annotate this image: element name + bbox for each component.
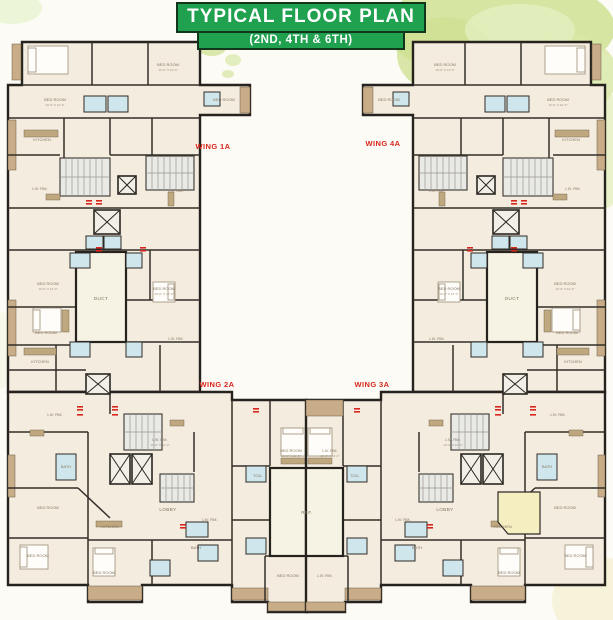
- lift-shaft-a: [118, 176, 136, 194]
- lift-shaft-e: [132, 454, 152, 484]
- room-label: LIV. RM.: [47, 412, 62, 417]
- room-label: LIV. RM.: [395, 517, 410, 522]
- room-label: KITCHEN: [33, 137, 51, 142]
- room-label: BED ROOM: [564, 553, 586, 558]
- room-dim: 10'-0" X 12'-0": [39, 287, 58, 291]
- room-label: LIV. RM.: [445, 437, 460, 442]
- room-label: LIV. RM.: [152, 437, 167, 442]
- room-dim: 10'-0" X 12'-0": [556, 287, 575, 291]
- room-dim: 10'-0" X 12'-0": [155, 292, 174, 296]
- terrace: [306, 400, 343, 416]
- room-dim: 10'-0" X 12'-0": [159, 68, 178, 72]
- room-label: BED ROOM: [280, 448, 302, 453]
- room-dim: 10'-0" X 12'-0": [151, 443, 170, 447]
- refuge-label: REF.: [301, 510, 313, 515]
- room-label: BATH: [542, 464, 552, 469]
- room-label: BED ROOM: [37, 505, 59, 510]
- room-label: LIV. RM.: [202, 517, 217, 522]
- lift-shaft-c: [86, 374, 110, 394]
- right-half-plan: [306, 42, 605, 612]
- plan-title: TYPICAL FLOOR PLAN: [176, 2, 426, 33]
- room-dim: 10'-0" X 12'-0": [440, 292, 459, 296]
- room-label: BED ROOM: [37, 281, 59, 286]
- room-label: BATH: [191, 545, 201, 550]
- room-dim: 10'-0" X 12'-0": [436, 68, 455, 72]
- staircase-block-2: [160, 474, 194, 502]
- room-label: KITCHEN: [562, 137, 580, 142]
- wing-1a-label: WING 1A: [196, 142, 231, 151]
- room-label: BATH: [61, 464, 71, 469]
- room-label: BED ROOM: [554, 281, 576, 286]
- wing-4a-label: WING 4A: [366, 139, 401, 148]
- room-label: TOIL.: [350, 473, 360, 478]
- room-label: LIV. RM.: [429, 336, 444, 341]
- room-label: LIV. RM.: [322, 448, 337, 453]
- plan-subtitle: (2ND, 4TH & 6TH): [197, 31, 405, 50]
- room-label: BED ROOM: [378, 97, 400, 102]
- room-label: BED ROOM: [556, 330, 578, 335]
- room-label: TOIL.: [253, 473, 263, 478]
- room-label: BED ROOM: [35, 330, 57, 335]
- room-dim: 10'-0" X 12'-0": [444, 443, 463, 447]
- floor-plan-page: WING 1A WING 4A WING 2A WING 3A DUCT DUC…: [0, 0, 613, 620]
- lift-shaft-d: [110, 454, 130, 484]
- room-label: KITCHEN: [494, 524, 512, 529]
- room-label: KITCHEN: [31, 359, 49, 364]
- room-label: BED ROOM: [153, 286, 175, 291]
- room-label: LIV. RM.: [32, 186, 47, 191]
- wing-2a-label: WING 2A: [200, 380, 235, 389]
- lobby-label: LOBBY: [159, 507, 176, 512]
- room-dim: 10'-0" X 12'-0": [321, 454, 340, 458]
- room-label: BED ROOM: [44, 97, 66, 102]
- room-label: LIV. RM.: [550, 412, 565, 417]
- room-label: LIV. RM.: [317, 573, 332, 578]
- staircase-tower-1: [60, 158, 110, 196]
- duct-label: DUCT: [505, 296, 519, 301]
- lift-shaft-b: [94, 210, 120, 234]
- room-label: BED ROOM: [438, 286, 460, 291]
- lobby-label: LOBBY: [436, 507, 453, 512]
- staircase-tower-2: [146, 156, 194, 190]
- room-label: BED ROOM: [498, 570, 520, 575]
- room-label: KITCHEN: [564, 359, 582, 364]
- room-dim: 10'-0" X 12'-0": [282, 454, 301, 458]
- room-label: BED ROOM: [93, 570, 115, 575]
- room-label: BED ROOM: [213, 97, 235, 102]
- room-label: BATH: [412, 545, 422, 550]
- room-label: LIV. RM.: [168, 188, 183, 193]
- room-dim: 10'-0" X 12'-0": [46, 103, 65, 107]
- room-label: LIV. RM.: [565, 186, 580, 191]
- room-label: LIV. RM.: [429, 188, 444, 193]
- left-half-plan: [8, 42, 307, 612]
- title-banner: TYPICAL FLOOR PLAN (2ND, 4TH & 6TH): [176, 2, 426, 50]
- floor-plan-canvas: WING 1A WING 4A WING 2A WING 3A DUCT DUC…: [0, 0, 613, 620]
- duct-label: DUCT: [94, 296, 108, 301]
- room-label: BED ROOM: [277, 573, 299, 578]
- room-label: KITCHEN: [101, 524, 119, 529]
- room-label: BED ROOM: [157, 62, 179, 67]
- room-label: BED ROOM: [554, 505, 576, 510]
- room-dim: 10'-0" X 12'-0": [549, 103, 568, 107]
- room-label: BED ROOM: [434, 62, 456, 67]
- room-label: BED ROOM: [27, 553, 49, 558]
- wing-3a-label: WING 3A: [355, 380, 390, 389]
- room-label: LIV. RM.: [168, 336, 183, 341]
- room-label: BED ROOM: [547, 97, 569, 102]
